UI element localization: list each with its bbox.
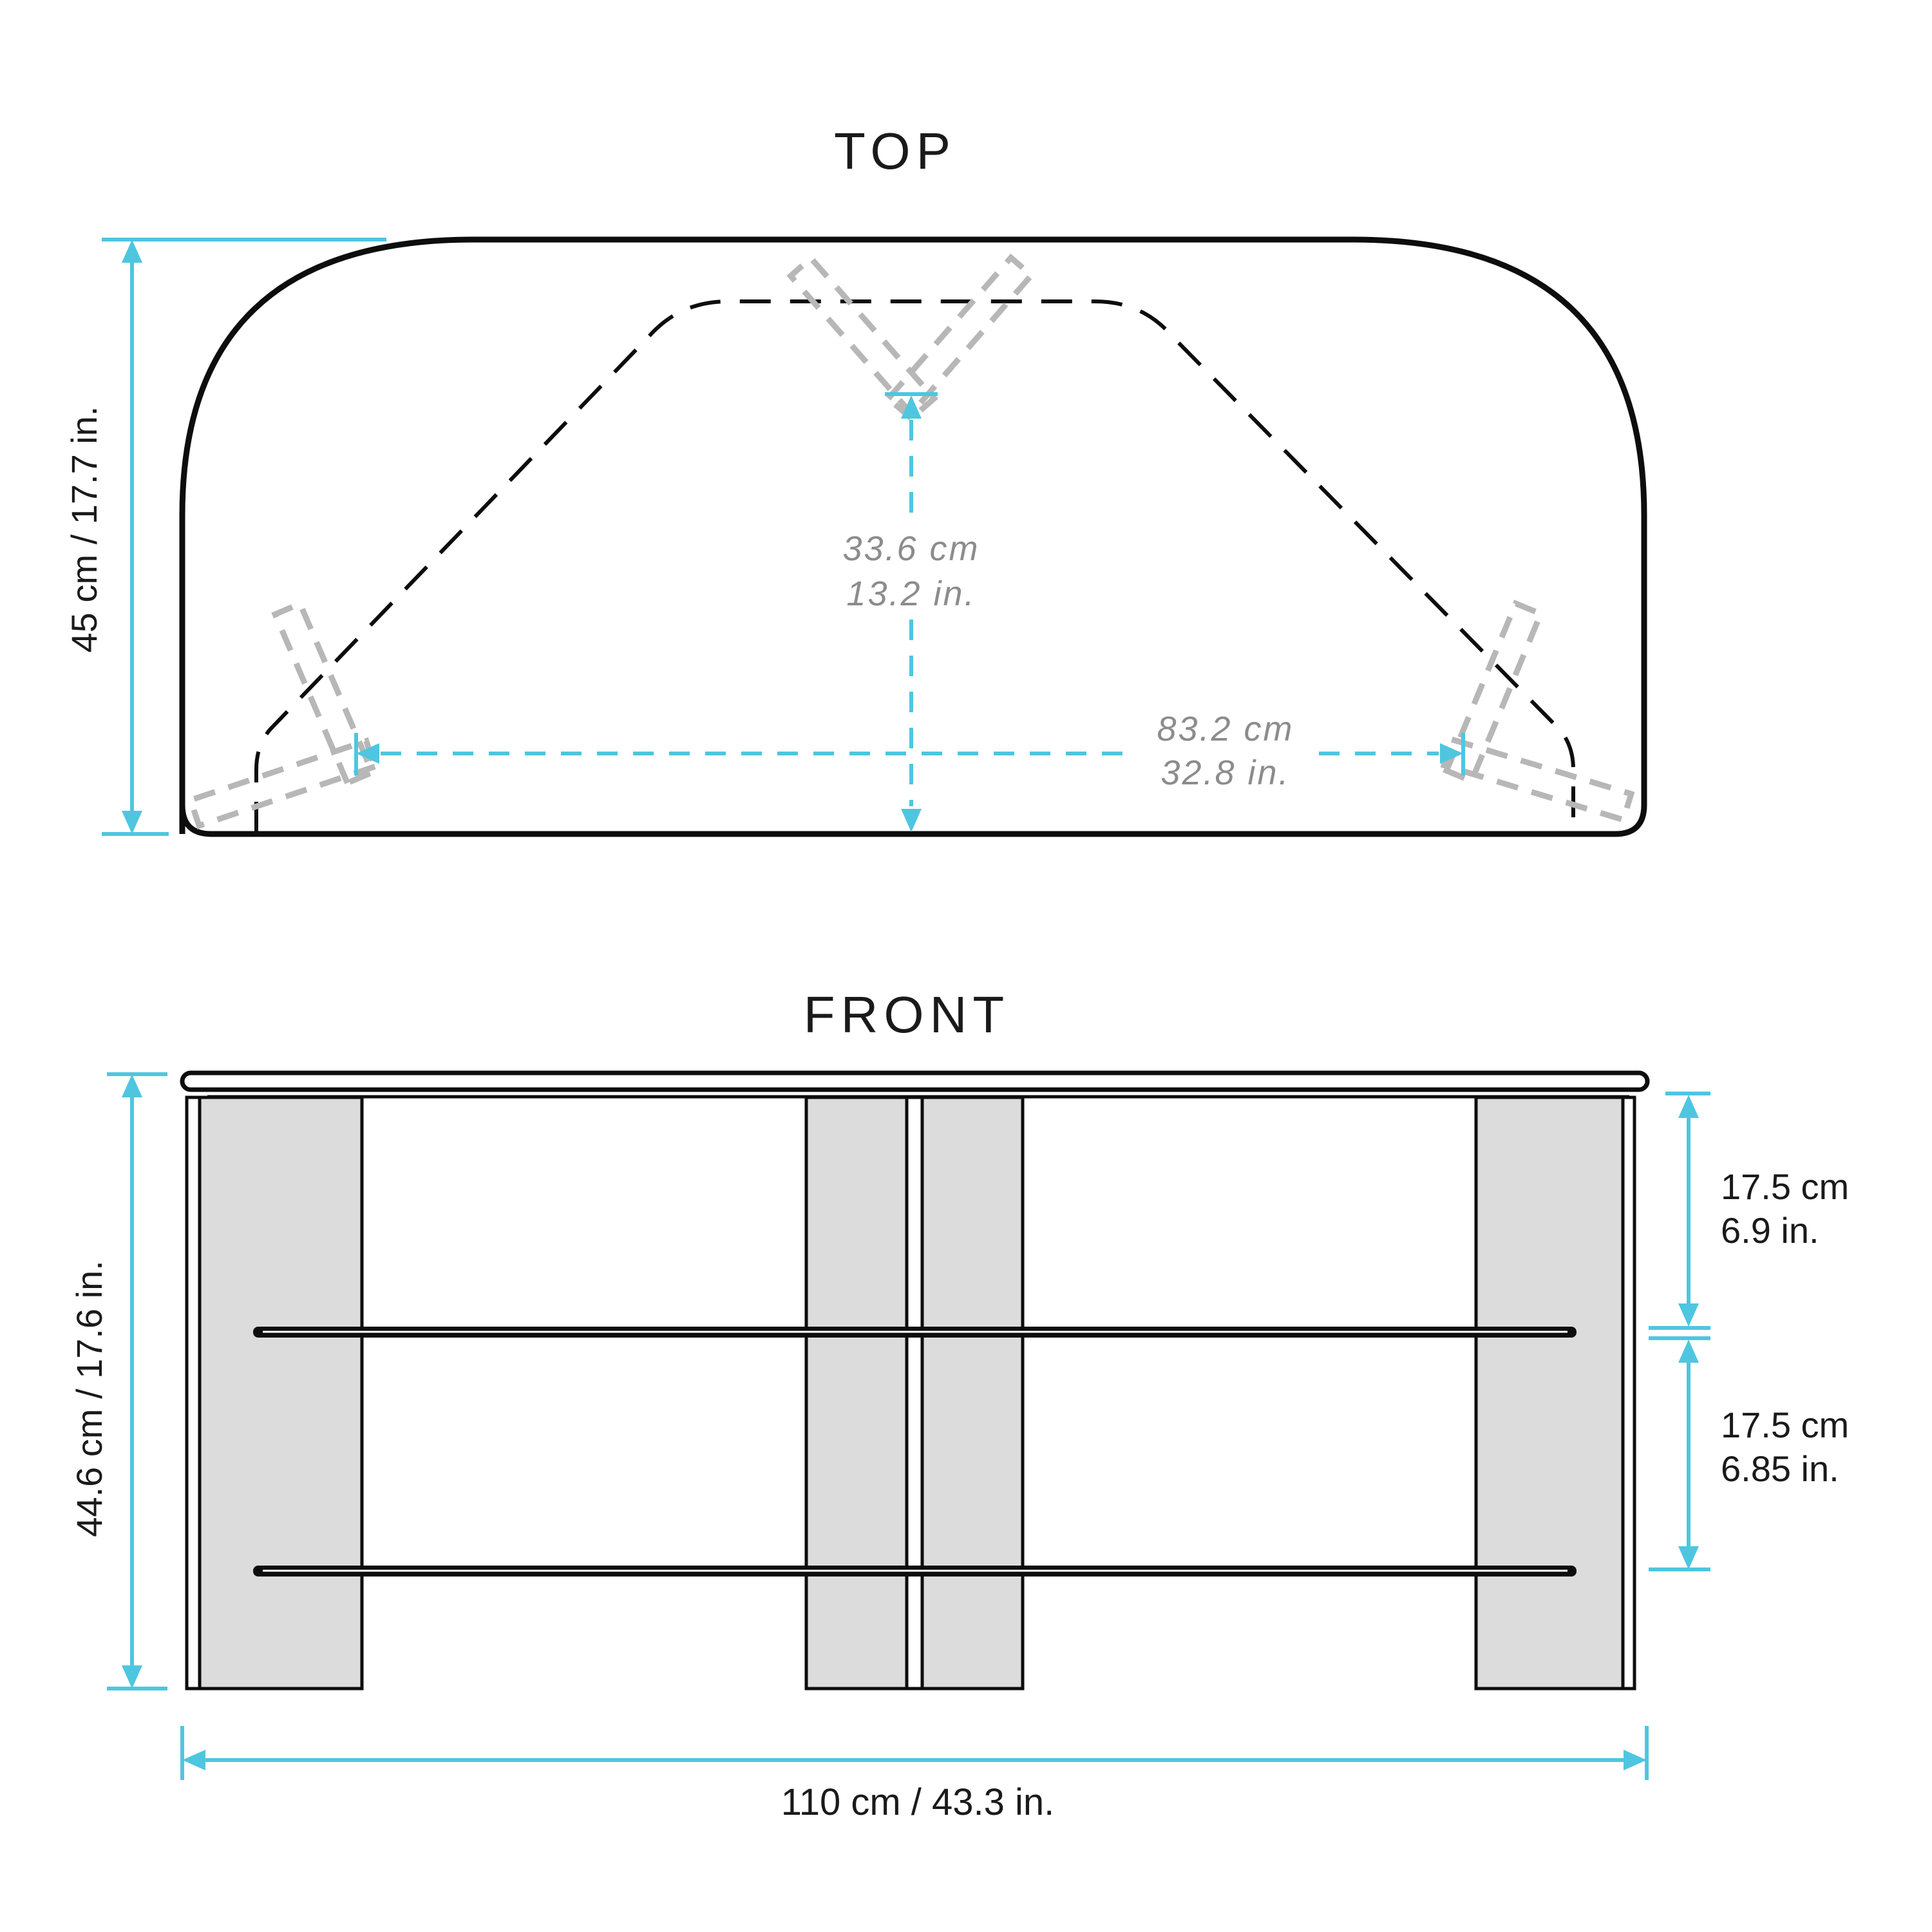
dim-upper-gap: 17.5 cm 6.9 in.: [1649, 1094, 1849, 1338]
bracket-arm: [1444, 739, 1631, 820]
front-top-panel: [182, 1073, 1647, 1097]
front-width-label: 110 cm / 43.3 in.: [781, 1781, 1055, 1823]
middle-shelf: [253, 1327, 1577, 1338]
inner-depth-in: 13.2 in.: [846, 574, 976, 613]
lower-gap-in: 6.85 in.: [1721, 1448, 1839, 1489]
bottom-shelf: [253, 1566, 1577, 1577]
inner-width-in: 32.8 in.: [1160, 753, 1290, 792]
inner-width-cm: 83.2 cm: [1157, 710, 1294, 748]
right-panel: [1476, 1097, 1623, 1689]
center-panel-edge: [907, 1097, 922, 1689]
upper-gap-in: 6.9 in.: [1721, 1210, 1819, 1251]
top-view: TOP 45 cm / 17.7 in.: [64, 122, 1644, 834]
right-panel-edge: [1623, 1097, 1634, 1689]
dim-inner-depth: 33.6 cm 13.2 in.: [842, 394, 980, 832]
leg-bracket-bottom-right: [1444, 603, 1631, 820]
top-depth-label: 45 cm / 17.7 in.: [64, 406, 104, 653]
dim-front-width: 110 cm / 43.3 in.: [182, 1726, 1647, 1823]
front-view-title: FRONT: [804, 986, 1010, 1043]
top-view-title: TOP: [834, 122, 956, 180]
center-left-panel: [806, 1097, 907, 1689]
dim-front-height: 44.6 cm / 17.6 in.: [69, 1074, 167, 1689]
inner-depth-cm: 33.6 cm: [842, 529, 980, 568]
left-panel: [200, 1097, 362, 1689]
dim-lower-gap: 17.5 cm 6.85 in.: [1649, 1340, 1849, 1569]
lower-gap-cm: 17.5 cm: [1721, 1405, 1849, 1445]
bracket-arm: [191, 741, 375, 826]
front-view: FRONT: [69, 986, 1849, 1823]
dimension-diagram: TOP 45 cm / 17.7 in.: [0, 0, 1932, 1932]
center-right-panel: [922, 1097, 1023, 1689]
upper-gap-cm: 17.5 cm: [1721, 1166, 1849, 1207]
left-panel-edge: [187, 1097, 200, 1689]
front-height-label: 44.6 cm / 17.6 in.: [69, 1260, 109, 1537]
support-panels: [187, 1097, 1634, 1689]
dim-top-depth: 45 cm / 17.7 in.: [64, 240, 386, 834]
